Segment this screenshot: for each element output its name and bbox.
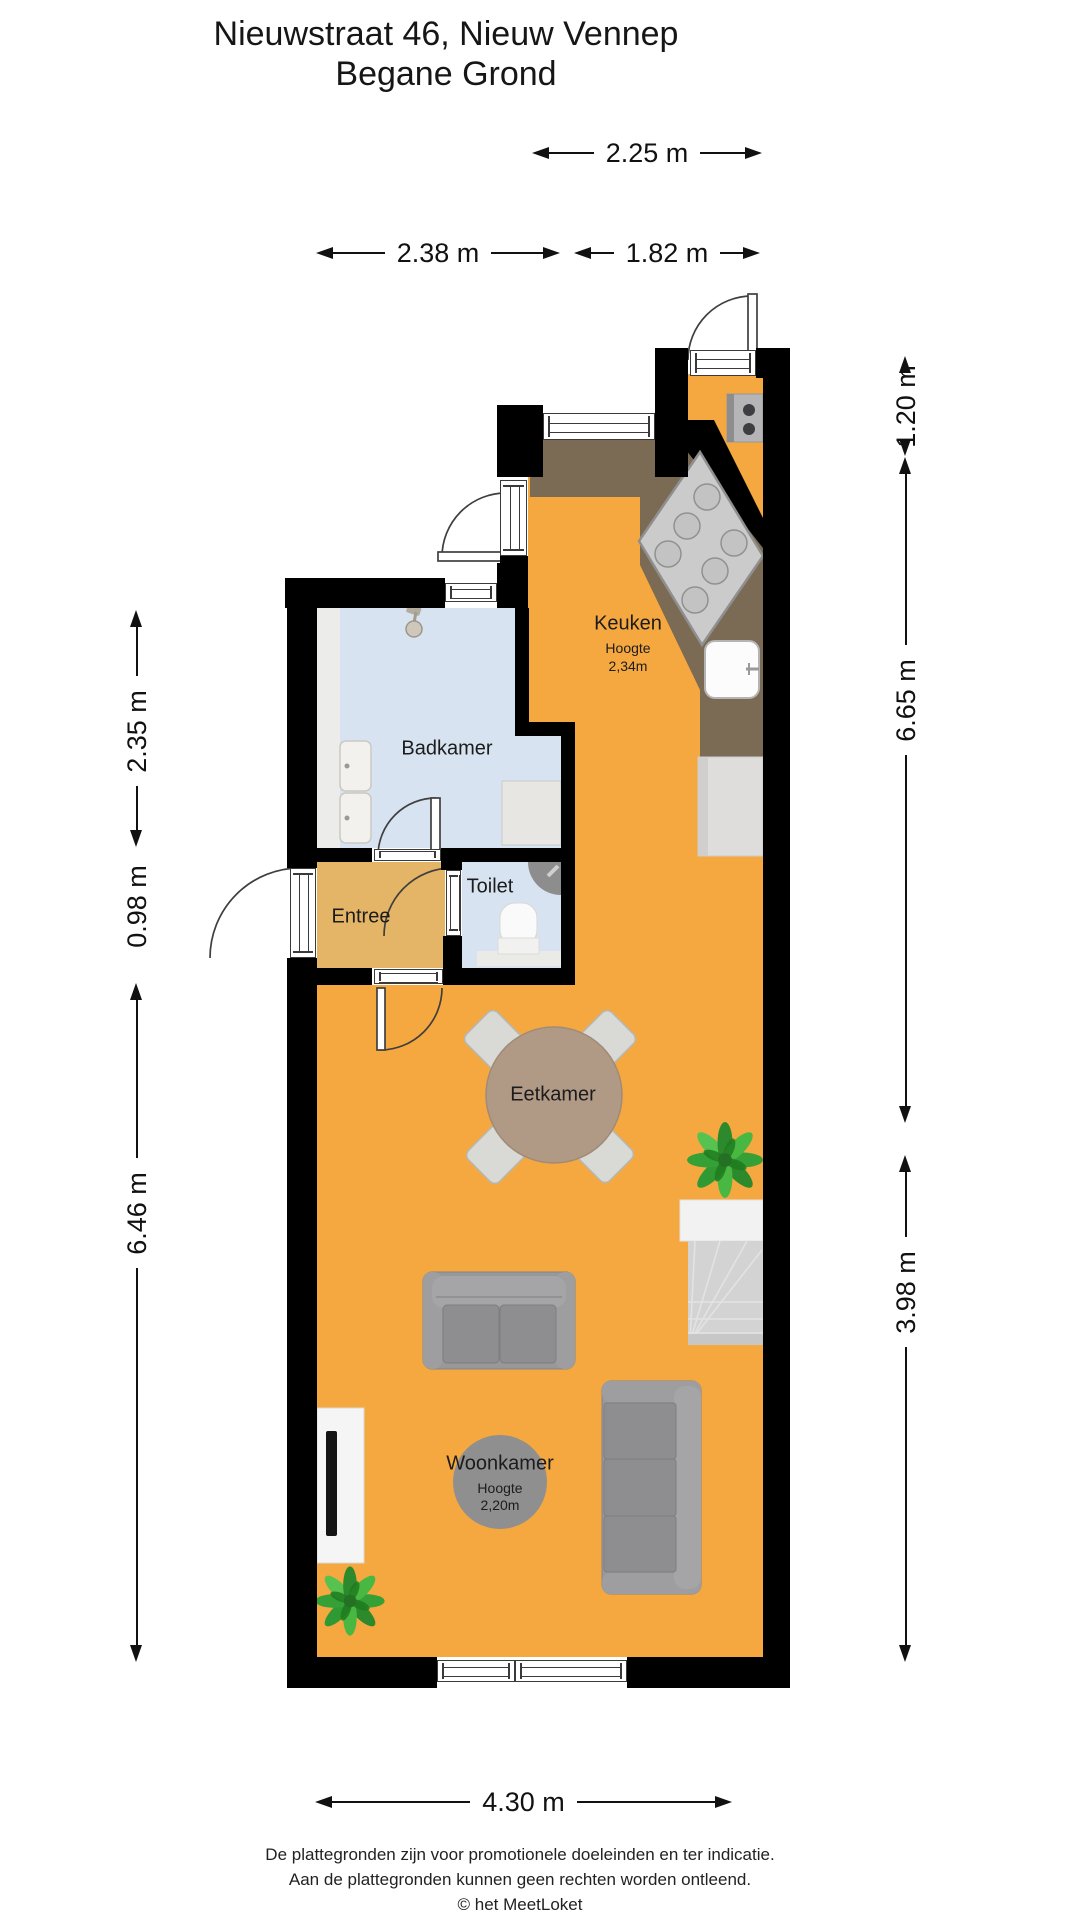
washbasin-icon xyxy=(340,741,371,843)
entry-door-threshold xyxy=(290,868,316,958)
dimension-label: 2.25 m xyxy=(606,138,689,169)
dimension-left-top: 2.35 m xyxy=(115,610,159,847)
wall-segment xyxy=(515,608,529,724)
living-window-left xyxy=(437,1660,515,1682)
wall-segment xyxy=(317,848,372,862)
stairs xyxy=(680,1200,763,1345)
room-label-keuken: Keuken xyxy=(594,613,662,636)
room-label-toilet: Toilet xyxy=(467,876,514,899)
room-height-value-woonkamer: 2,20m xyxy=(481,1497,520,1513)
dimension-left-bottom: 6.46 m xyxy=(115,983,159,1662)
room-label-entree: Entree xyxy=(332,906,391,929)
dimension-label: 3.98 m xyxy=(891,1251,922,1334)
wall-segment xyxy=(497,405,543,477)
room-label-woonkamer: Woonkamer xyxy=(446,1453,553,1476)
dimension-right-bottom: 3.98 m xyxy=(884,1155,928,1662)
tv-icon xyxy=(326,1431,337,1536)
room-height-caption-woonkamer: Hoogte xyxy=(477,1480,522,1496)
dimension-label: 1.82 m xyxy=(626,238,709,269)
tv-cabinet xyxy=(317,1408,364,1563)
wall-segment xyxy=(317,968,372,985)
wall-segment xyxy=(287,578,317,868)
shower-icon xyxy=(406,603,422,637)
bathroom-door-threshold xyxy=(374,849,441,861)
dimension-bottom-width: 4.30 m xyxy=(315,1785,732,1819)
wall-segment xyxy=(655,348,688,477)
wall-segment xyxy=(443,936,462,985)
front-door-threshold xyxy=(690,350,756,376)
wall-segment xyxy=(627,1657,790,1688)
dimension-label: 1.20 m xyxy=(891,365,922,448)
living-window-right xyxy=(515,1660,627,1682)
footer-line-2: Aan de plattegronden kunnen geen rechten… xyxy=(0,1867,1040,1892)
sofa-three-seat xyxy=(602,1381,701,1594)
wall-segment xyxy=(441,848,462,870)
room-label-badkamer: Badkamer xyxy=(401,738,492,761)
dimension-label: 6.65 m xyxy=(891,659,922,742)
plant-icon xyxy=(315,1566,384,1635)
toilet-door-threshold xyxy=(446,870,461,936)
dimension-label: 4.30 m xyxy=(482,1787,565,1818)
corner-basin-icon xyxy=(528,862,561,895)
dimension-top-left-width: 2.38 m xyxy=(316,236,560,270)
floorplan-page: Nieuwstraat 46, Nieuw Vennep Begane Gron… xyxy=(0,0,1080,1920)
boiler-icon xyxy=(727,394,763,442)
room-height-value-keuken: 2,34m xyxy=(609,658,648,674)
footer-line-1: De plattegronden zijn voor promotionele … xyxy=(0,1842,1040,1867)
room-label-eetkamer: Eetkamer xyxy=(510,1084,596,1107)
fridge-icon xyxy=(698,757,763,856)
dimension-label: 2.35 m xyxy=(122,690,153,773)
washer-icon xyxy=(502,781,561,845)
shower-strip xyxy=(317,608,340,848)
dimension-label: 0.98 m xyxy=(122,865,153,948)
kitchen-window xyxy=(543,413,655,440)
wall-segment xyxy=(763,348,790,1688)
dimension-top-width: 2.25 m xyxy=(532,136,762,170)
hall-door-threshold xyxy=(374,969,443,984)
dimension-left-middle: 0.98 m xyxy=(115,851,159,961)
toilet-icon xyxy=(498,903,539,954)
sink-icon xyxy=(705,641,759,698)
footer-credit: © het MeetLoket xyxy=(0,1892,1040,1917)
room-height-caption-keuken: Hoogte xyxy=(605,640,650,656)
side-door-threshold xyxy=(500,480,527,556)
dimension-right-middle: 6.65 m xyxy=(884,457,928,1123)
dimension-label: 2.38 m xyxy=(397,238,480,269)
wall-segment xyxy=(462,848,561,862)
dimension-right-top: 1.20 m xyxy=(884,356,928,456)
wall-segment xyxy=(497,563,528,608)
wall-segment xyxy=(287,958,317,1688)
dimension-label: 6.46 m xyxy=(122,1172,153,1255)
wall-segment xyxy=(561,736,575,985)
footer-disclaimer: De plattegronden zijn voor promotionele … xyxy=(0,1842,1040,1917)
wall-segment xyxy=(462,968,575,985)
plant-icon xyxy=(687,1122,763,1198)
sofa-two-seat xyxy=(423,1272,575,1369)
wall-segment xyxy=(287,1657,437,1688)
dimension-top-right-width: 1.82 m xyxy=(574,236,760,270)
wall-segment xyxy=(515,722,575,736)
bathroom-window xyxy=(445,583,497,602)
